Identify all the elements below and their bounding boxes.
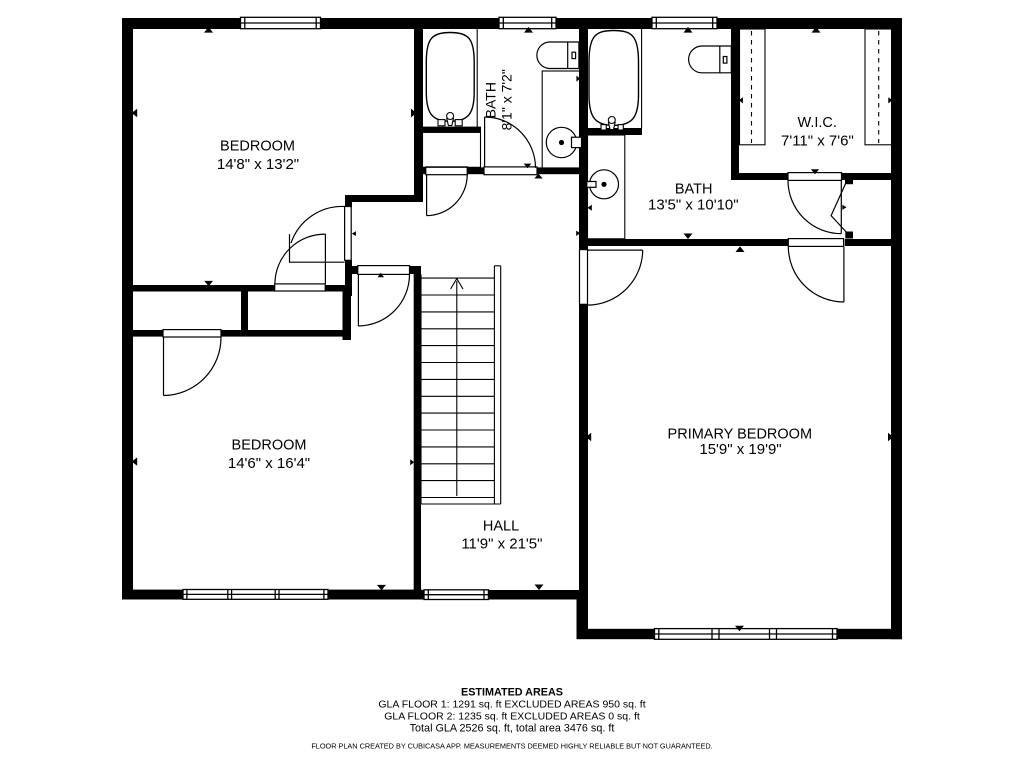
svg-text:BATH: BATH xyxy=(483,82,499,118)
svg-text:8'1" x 7'2": 8'1" x 7'2" xyxy=(498,69,514,130)
svg-text:ESTIMATED AREAS: ESTIMATED AREAS xyxy=(461,686,563,698)
svg-text:14'8" x 13'2": 14'8" x 13'2" xyxy=(217,156,299,173)
svg-text:BEDROOM: BEDROOM xyxy=(220,138,295,154)
svg-text:BEDROOM: BEDROOM xyxy=(232,437,307,453)
svg-text:W.I.C.: W.I.C. xyxy=(797,115,836,131)
svg-text:14'6" x 16'4": 14'6" x 16'4" xyxy=(228,455,310,472)
svg-text:HALL: HALL xyxy=(483,519,519,535)
svg-text:11'9" x 21'5": 11'9" x 21'5" xyxy=(461,536,542,553)
svg-text:15'9" x 19'9": 15'9" x 19'9" xyxy=(699,441,781,458)
svg-text:7'11" x 7'6": 7'11" x 7'6" xyxy=(781,132,854,149)
svg-text:Total GLA 2526 sq. ft, total a: Total GLA 2526 sq. ft, total area 3476 s… xyxy=(410,722,615,734)
svg-text:FLOOR PLAN CREATED BY CUBICASA: FLOOR PLAN CREATED BY CUBICASA APP. MEAS… xyxy=(311,742,712,751)
svg-text:GLA FLOOR 1: 1291 sq. ft EXCLU: GLA FLOOR 1: 1291 sq. ft EXCLUDED AREAS … xyxy=(378,699,645,711)
svg-text:GLA FLOOR 2: 1235 sq. ft EXCLU: GLA FLOOR 2: 1235 sq. ft EXCLUDED AREAS … xyxy=(384,711,640,723)
svg-text:BATH: BATH xyxy=(675,182,713,198)
svg-text:13'5" x 10'10": 13'5" x 10'10" xyxy=(648,196,739,213)
